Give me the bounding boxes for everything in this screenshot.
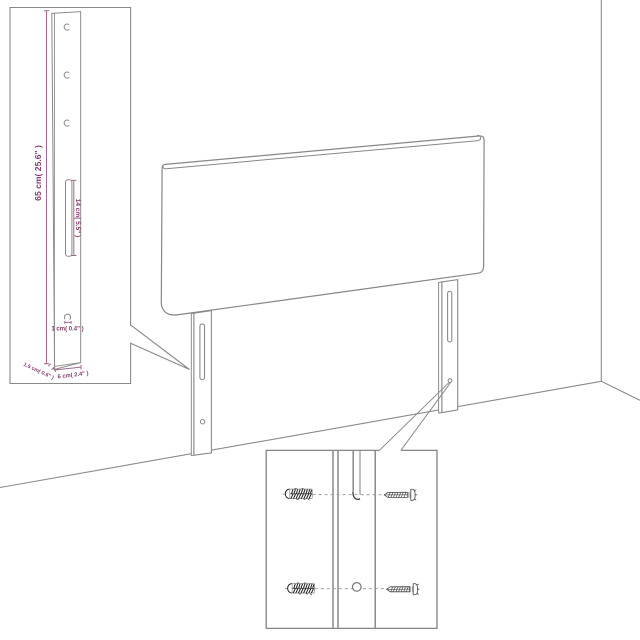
svg-text:14 cm( 5.5" ): 14 cm( 5.5" ) (74, 199, 81, 238)
svg-text:65 cm( 25.6" ): 65 cm( 25.6" ) (33, 145, 43, 201)
svg-text:1 cm( 0.4" ): 1 cm( 0.4" ) (51, 327, 83, 333)
